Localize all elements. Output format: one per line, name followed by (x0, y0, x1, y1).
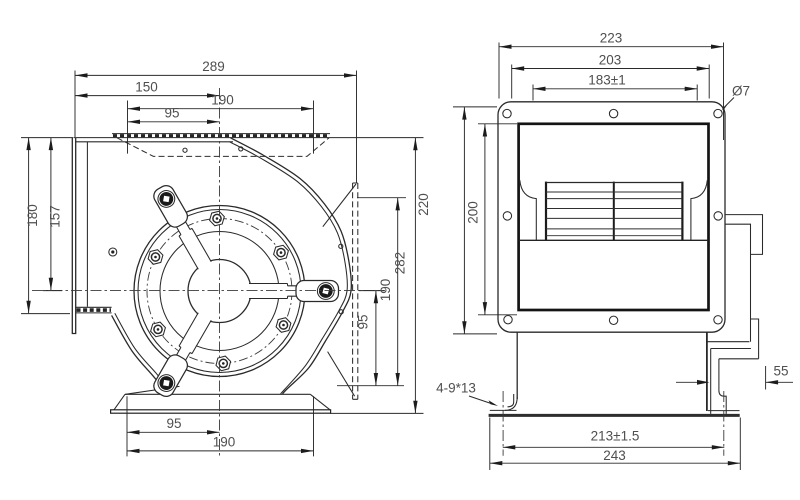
svg-text:180: 180 (25, 204, 40, 227)
svg-text:95: 95 (166, 416, 181, 431)
svg-text:243: 243 (603, 448, 626, 463)
svg-text:289: 289 (202, 59, 225, 74)
svg-text:Ø7: Ø7 (732, 84, 750, 99)
svg-text:183±1: 183±1 (588, 72, 625, 87)
svg-text:150: 150 (135, 80, 158, 95)
svg-text:157: 157 (48, 205, 63, 228)
svg-text:190: 190 (378, 279, 393, 302)
svg-text:190: 190 (211, 93, 234, 108)
svg-text:203: 203 (599, 52, 622, 67)
svg-text:95: 95 (356, 314, 371, 329)
svg-text:223: 223 (600, 31, 623, 46)
svg-text:95: 95 (164, 106, 179, 121)
svg-text:190: 190 (213, 435, 236, 450)
svg-text:4-9*13: 4-9*13 (436, 381, 476, 396)
svg-text:213±1.5: 213±1.5 (591, 429, 640, 444)
svg-text:55: 55 (773, 364, 788, 379)
svg-text:200: 200 (466, 201, 481, 224)
svg-text:282: 282 (393, 252, 408, 275)
svg-text:220: 220 (416, 193, 431, 216)
